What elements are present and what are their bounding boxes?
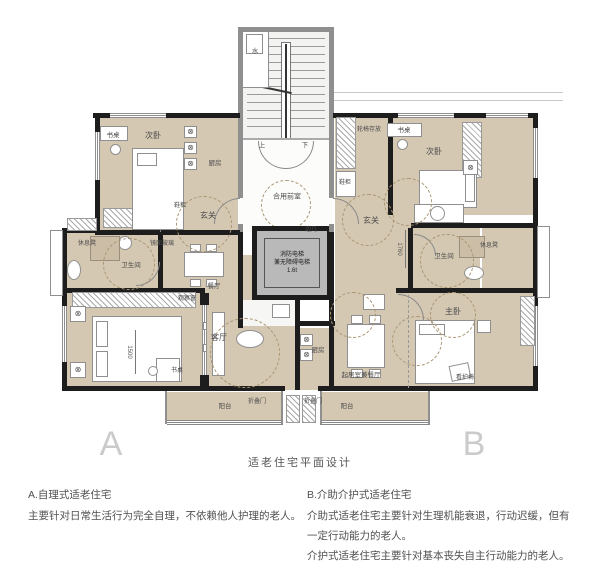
window	[110, 113, 166, 118]
wall	[200, 293, 209, 305]
label-living-dining-b: 起居室兼餐厅	[342, 373, 381, 380]
turning-circle	[384, 178, 432, 226]
stool	[148, 366, 158, 376]
chair	[190, 279, 201, 287]
caption-a-title: A.自理式适老住宅	[28, 486, 302, 506]
label-fold-a: 折叠门	[248, 399, 266, 405]
bay-window-b	[537, 226, 550, 298]
label-stair-up: 上	[259, 143, 266, 150]
label-desk-b: 书桌	[398, 128, 411, 135]
unit-letter-a: A	[100, 427, 123, 461]
label-shoe-a: 鞋柜	[174, 203, 186, 209]
armchair	[272, 304, 290, 318]
caption-b-title: B.介助介护式适老住宅	[307, 486, 577, 506]
balcony-railing-b	[320, 420, 430, 425]
caption-a: A.自理式适老住宅 主要针对日常生活行为完全自理，不依赖他人护理的老人。	[28, 486, 302, 527]
dimension-text-entry: 1760	[396, 242, 402, 255]
window	[486, 113, 528, 118]
bay-window-a	[50, 230, 63, 296]
label-desk-a: 书桌	[107, 133, 120, 140]
stove-icon: ⊗	[300, 334, 313, 346]
stair-stringer-line	[285, 44, 287, 144]
stool	[110, 144, 121, 155]
window	[533, 128, 538, 178]
floor-bay-b	[482, 228, 536, 296]
nightstand	[477, 320, 491, 333]
observation-window-strip	[202, 305, 207, 375]
service-strip	[300, 302, 329, 323]
label-bench-a: 休息凳	[78, 241, 96, 247]
toilet	[67, 260, 81, 280]
pillow	[465, 174, 475, 202]
caption-b: B.介助介护式适老住宅 介助式适老住宅主要针对生理机能衰退，行动迟缓，但有一定行…	[307, 486, 577, 568]
dining-table	[184, 252, 224, 277]
turning-circle	[420, 234, 474, 288]
fan-icon: ⊗	[187, 144, 194, 152]
dresser-hatch	[520, 296, 535, 346]
label-fold-b: 折叠门	[304, 399, 322, 405]
label-bench-b: 休息凳	[480, 243, 498, 249]
elevator-line3: 1.6t	[287, 268, 297, 274]
ac-unit-hatch	[286, 395, 300, 423]
label-entry-b: 玄关	[363, 217, 379, 225]
wheelchair-storage-hatch	[336, 117, 356, 169]
label-kitchen-b: 厨房	[312, 348, 325, 355]
label-lobby: 合用前室	[273, 194, 301, 201]
dimension-line	[135, 330, 136, 374]
label-master-b: 主卧	[445, 308, 461, 316]
label-dining-a: 餐厅	[208, 284, 221, 291]
caption-b-body1: 介助式适老住宅主要针对生理机能衰退，行动迟缓，但有一定行动能力的老人。	[307, 510, 570, 542]
label-mirror-a: 镜面玻璃	[150, 241, 174, 247]
label-living-a: 客厅	[211, 334, 227, 342]
label-entry-a: 玄关	[200, 212, 216, 220]
caption-a-body: 主要针对日常生活行为完全自理，不依赖他人护理的老人。	[28, 510, 301, 522]
closet-hatch	[67, 218, 97, 231]
wall	[200, 375, 209, 387]
turning-circle	[210, 318, 280, 388]
caption-b-body2: 介护式适老住宅主要针对基本丧失自主行动能力的老人。	[307, 547, 577, 567]
observation-window-pane	[203, 322, 207, 330]
label-bath-b: 卫生间	[434, 254, 454, 261]
wall	[238, 232, 243, 328]
label-care-chair-b: 看护椅	[456, 375, 474, 381]
pillow	[96, 351, 108, 377]
label-side-table-b: 边几	[305, 227, 317, 233]
stove-icon: ⊗	[184, 158, 197, 170]
fan-icon: ⊗	[303, 351, 310, 359]
label-bedroom2-a: 次卧	[145, 132, 161, 140]
label-bedroom2-b: 次卧	[426, 148, 442, 156]
balcony-side	[165, 391, 167, 424]
fan-icon: ⊗	[75, 310, 82, 318]
wall	[396, 288, 538, 293]
fan-icon: ⊗	[303, 336, 310, 344]
balcony-side	[320, 391, 322, 424]
fan-icon: ⊗	[187, 128, 194, 136]
window	[398, 113, 454, 118]
wall	[408, 228, 413, 290]
armchair-icon: ⊗	[463, 160, 478, 175]
washbasin	[430, 206, 445, 221]
context-line	[333, 92, 563, 93]
dimension-line	[405, 230, 406, 268]
context-line	[333, 100, 563, 101]
fan-icon: ⊗	[187, 160, 194, 168]
label-wheelchair-b: 轮椅存放	[357, 127, 381, 133]
observation-window-pane	[203, 344, 207, 352]
balcony-railing-a	[167, 420, 283, 425]
elevator-line1: 消防电梯	[280, 252, 304, 258]
elevator-label: 消防电梯 兼无障碍电梯 1.6t	[257, 233, 327, 293]
label-stair-down: 下	[302, 143, 309, 150]
armchair-icon: ⊗	[70, 362, 86, 378]
label-balcony-a: 阳台	[219, 404, 232, 411]
wall	[411, 223, 538, 228]
label-obs-window-a: 观察窗	[178, 296, 196, 302]
pillow	[137, 153, 157, 166]
armchair-icon: ⊗	[70, 306, 86, 322]
label-balcony-b: 阳台	[341, 404, 354, 411]
floor-plan-canvas: 消防电梯 兼无障碍电梯 1.6t	[0, 0, 600, 585]
turning-circle	[330, 292, 376, 338]
label-water: 水	[252, 49, 259, 56]
balcony-side	[428, 391, 430, 424]
pillow	[96, 321, 108, 347]
fan-icon: ⊗	[467, 164, 474, 172]
stool	[397, 139, 408, 150]
window	[62, 306, 67, 362]
plan-title: 适老住宅平面设计	[248, 454, 352, 470]
wall	[238, 27, 334, 32]
wall	[295, 321, 335, 326]
fan-icon: ⊗	[75, 366, 82, 374]
turning-circle-lobby	[261, 180, 311, 230]
elevator-line2: 兼无障碍电梯	[274, 260, 310, 266]
unit-letter-b: B	[463, 427, 486, 461]
label-kitchen-a: 厨房	[209, 161, 222, 168]
label-shoe-b: 鞋柜	[339, 180, 351, 186]
stove-icon: ⊗	[184, 142, 197, 154]
label-bath-a: 卫生间	[121, 263, 141, 270]
label-desk2-a: 书桌	[171, 368, 183, 374]
dimension-text-bed: 1500	[126, 345, 132, 358]
stove-icon: ⊗	[184, 126, 197, 138]
